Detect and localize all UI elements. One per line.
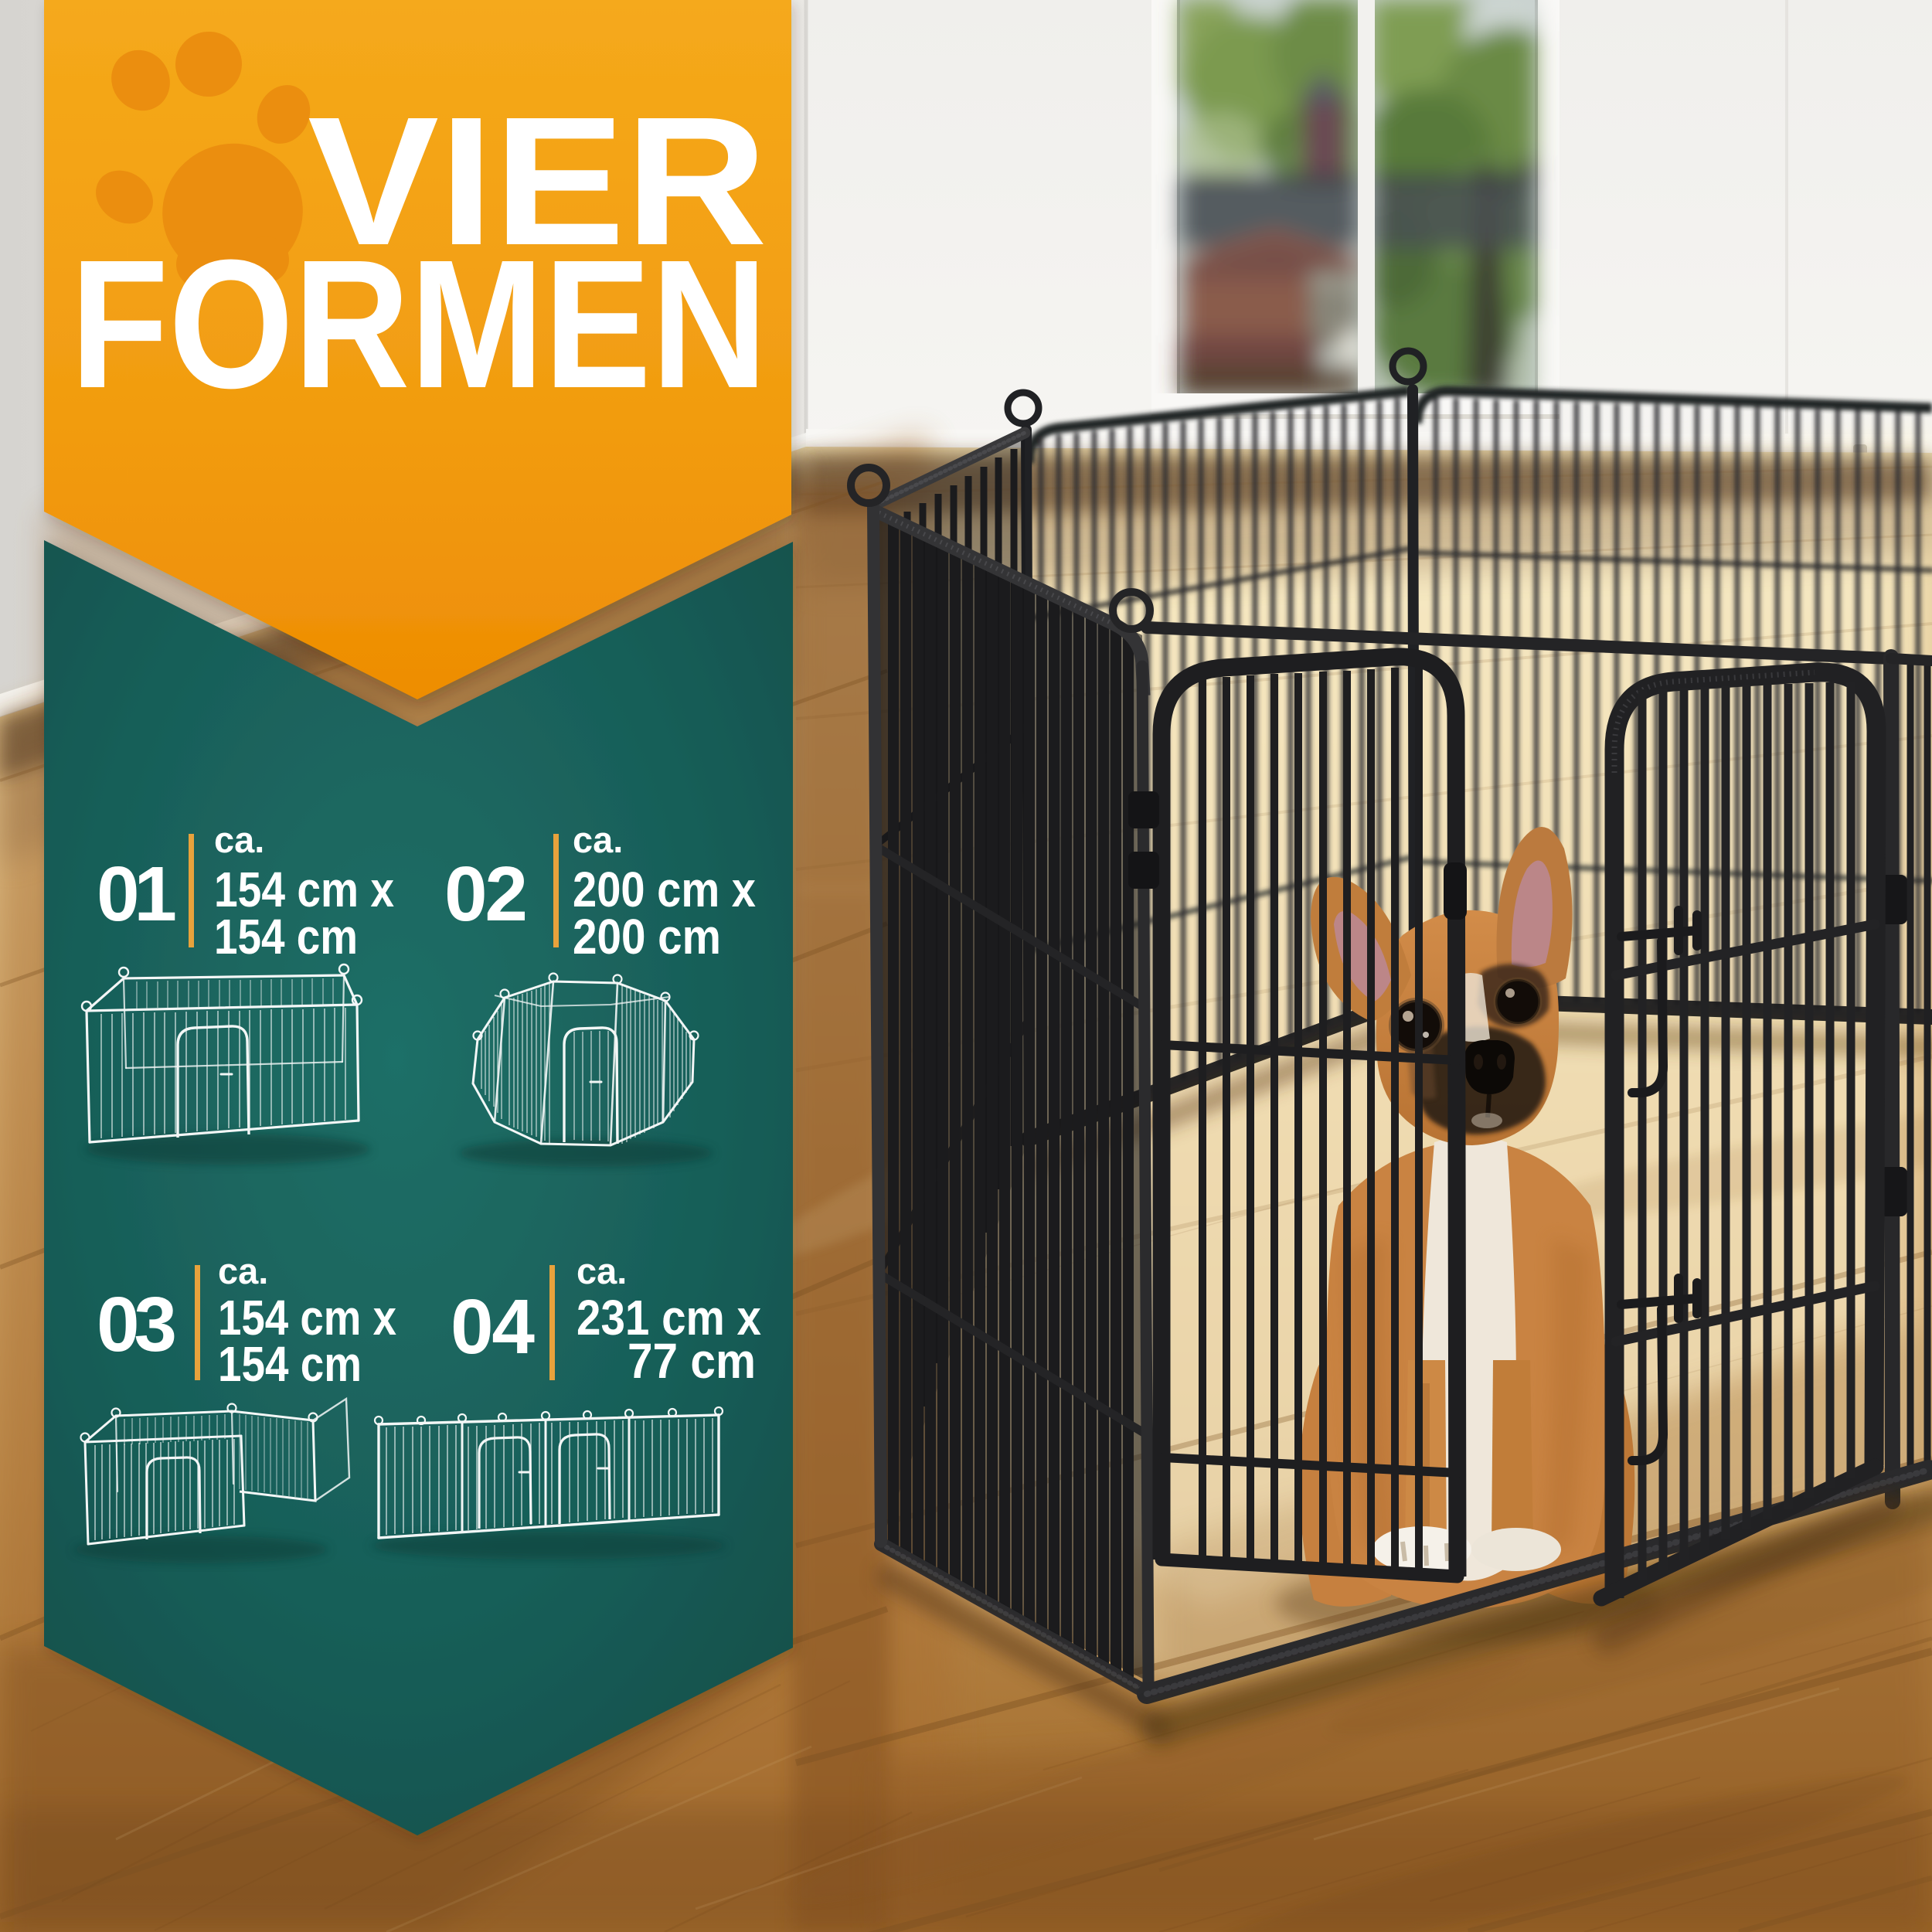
svg-text:77 cm: 77 cm — [628, 1333, 756, 1389]
svg-text:200 cm: 200 cm — [573, 909, 721, 964]
svg-text:04: 04 — [451, 1284, 535, 1370]
svg-text:01: 01 — [97, 851, 177, 937]
svg-text:ca.: ca. — [214, 819, 264, 860]
svg-text:ca.: ca. — [577, 1250, 627, 1291]
svg-text:ca.: ca. — [218, 1250, 268, 1291]
svg-text:02: 02 — [444, 851, 528, 937]
svg-text:FORMEN: FORMEN — [70, 222, 767, 427]
svg-text:ca.: ca. — [573, 819, 623, 860]
svg-text:154 cm: 154 cm — [218, 1336, 362, 1392]
svg-text:154 cm: 154 cm — [214, 909, 358, 964]
svg-text:03: 03 — [97, 1281, 177, 1368]
